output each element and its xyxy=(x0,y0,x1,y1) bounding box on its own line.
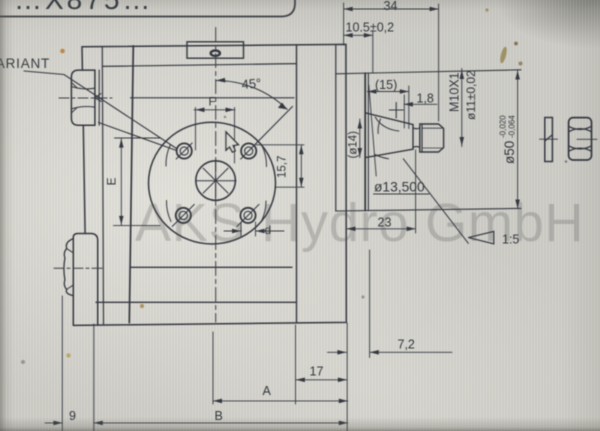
svg-text:7,2: 7,2 xyxy=(398,338,415,352)
svg-text:VARIANT: VARIANT xyxy=(0,56,50,71)
svg-text:A: A xyxy=(263,384,272,398)
svg-text:1:5: 1:5 xyxy=(502,233,519,247)
svg-text:B: B xyxy=(215,409,223,423)
svg-text:-0,020: -0,020 xyxy=(499,115,508,138)
svg-text:…X875…: …X875… xyxy=(14,0,153,15)
svg-text:15,7: 15,7 xyxy=(277,156,289,178)
svg-text:d: d xyxy=(265,223,272,237)
svg-text:9: 9 xyxy=(69,409,76,423)
svg-text:1,8: 1,8 xyxy=(417,92,434,106)
svg-text:ø11±0,02: ø11±0,02 xyxy=(464,70,478,120)
svg-text:E: E xyxy=(105,177,119,185)
svg-text:(ø14): (ø14) xyxy=(348,131,360,159)
svg-text:17: 17 xyxy=(310,365,324,379)
svg-text:34: 34 xyxy=(384,0,398,13)
svg-text:ø50: ø50 xyxy=(502,141,517,164)
svg-text:45°: 45° xyxy=(241,75,262,92)
svg-text:ø13,500: ø13,500 xyxy=(374,180,425,195)
svg-text:F: F xyxy=(209,97,216,109)
svg-text:-0,064: -0,064 xyxy=(508,115,517,138)
svg-text:23: 23 xyxy=(378,216,392,230)
svg-text:10.5±0,2: 10.5±0,2 xyxy=(346,21,395,35)
svg-text:(15): (15) xyxy=(375,78,397,92)
svg-text:M10X1: M10X1 xyxy=(448,72,462,112)
